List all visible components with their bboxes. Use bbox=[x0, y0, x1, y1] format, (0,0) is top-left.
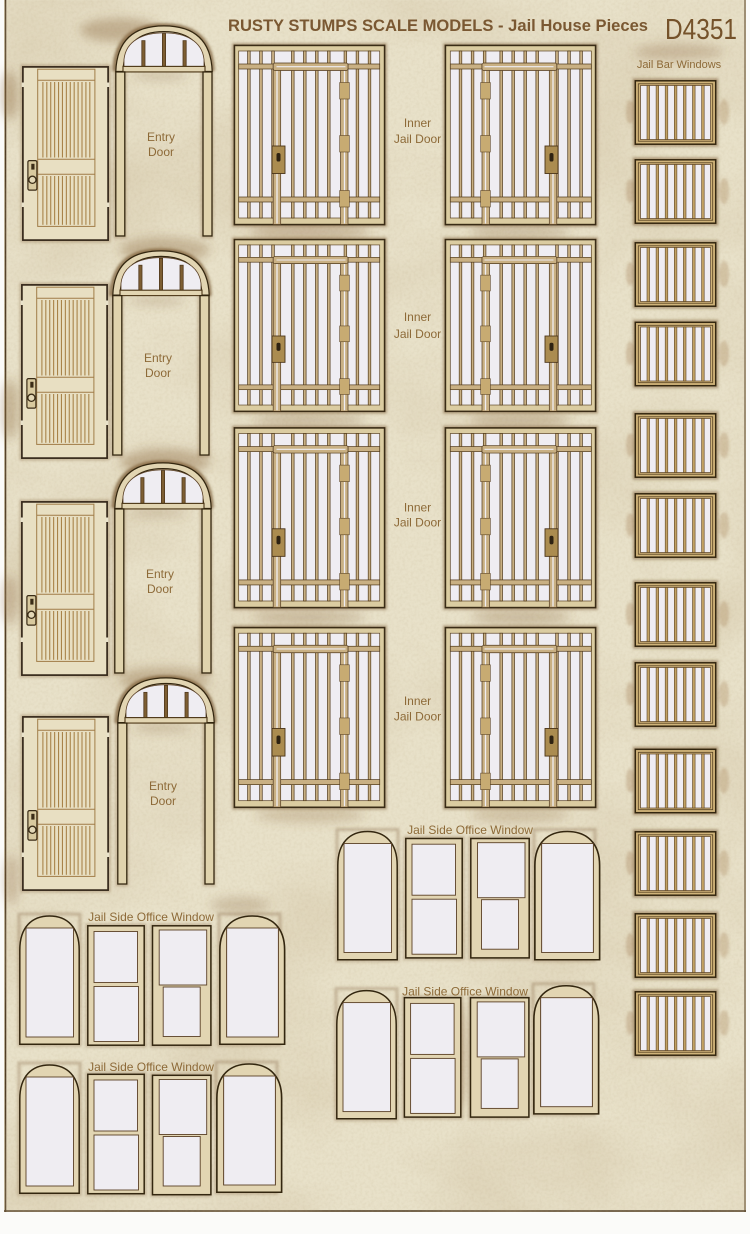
svg-text:EntryDoor: EntryDoor bbox=[146, 567, 174, 596]
svg-text:EntryDoor: EntryDoor bbox=[147, 130, 175, 159]
svg-text:RUSTY STUMPS SCALE MODELS - Ja: RUSTY STUMPS SCALE MODELS - Jail House P… bbox=[228, 16, 648, 35]
svg-text:D4351: D4351 bbox=[665, 14, 737, 46]
svg-text:EntryDoor: EntryDoor bbox=[144, 351, 172, 380]
svg-text:Jail Bar Windows: Jail Bar Windows bbox=[637, 59, 722, 71]
svg-text:Jail Side Office Window: Jail Side Office Window bbox=[402, 985, 528, 999]
svg-text:Jail Side Office Window: Jail Side Office Window bbox=[407, 823, 533, 837]
svg-text:Jail Side Office Window: Jail Side Office Window bbox=[88, 1060, 214, 1074]
svg-text:Jail Side Office Window: Jail Side Office Window bbox=[88, 910, 214, 924]
svg-text:EntryDoor: EntryDoor bbox=[149, 779, 177, 808]
